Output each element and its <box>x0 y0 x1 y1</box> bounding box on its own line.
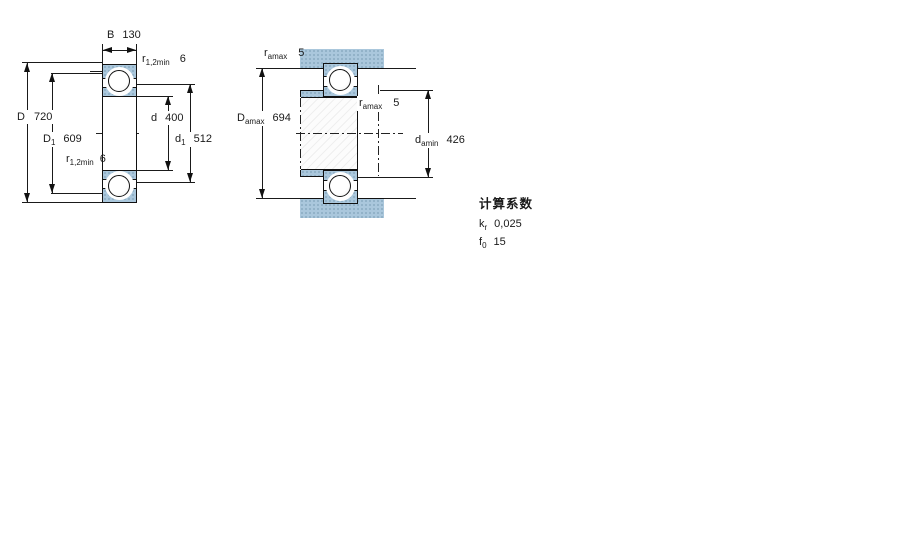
dim-r12-top: r1,2min6 <box>140 52 188 67</box>
fillet-reference-line-lower <box>378 112 379 176</box>
Da-extension-bottom <box>256 198 300 199</box>
factor-kr: kr0,025 <box>479 218 533 230</box>
ball <box>329 175 351 197</box>
d-dimension-line <box>168 96 169 170</box>
mounted-bearing-top <box>323 63 358 97</box>
d-extension-bottom <box>137 170 173 171</box>
D-extension-top <box>22 62 102 63</box>
D1-extension-top <box>51 73 102 74</box>
b-arrow-right <box>127 47 136 53</box>
D-arrow-up <box>24 63 30 72</box>
d-arrow-up <box>165 96 171 105</box>
dim-ra-mid: ramax5 <box>357 96 401 111</box>
Da-dimension-line <box>262 68 263 198</box>
d-arrow-down <box>165 161 171 170</box>
dim-Da: Damax694 <box>235 111 293 126</box>
D-arrow-down <box>24 193 30 202</box>
housing-shoulder-line-top <box>384 68 416 69</box>
dim-d1: d1512 <box>173 132 214 147</box>
shaft-shoulder-top <box>300 90 323 97</box>
mounted-bearing-bottom <box>323 170 358 204</box>
dim-da: damin426 <box>413 133 467 148</box>
bearing-section <box>102 64 137 203</box>
housing-shoulder-line-bottom <box>384 198 416 199</box>
shaft-shoulder-bottom <box>300 170 323 177</box>
calculation-factors-heading: 计算系数 <box>479 193 533 212</box>
D1-arrow-down <box>49 184 55 193</box>
calculation-factors: 计算系数 kr0,025 f015 <box>479 193 533 248</box>
ball-top <box>108 70 130 92</box>
d1-arrow-up <box>187 84 193 93</box>
dim-B: B130 <box>105 28 143 42</box>
Da-arrow-up <box>259 68 265 77</box>
b-arrow-left <box>103 47 112 53</box>
ball <box>329 69 351 91</box>
axis-line-right-view <box>296 133 403 134</box>
dim-D: D720 <box>15 110 54 124</box>
factor-f0: f015 <box>479 236 533 248</box>
D1-arrow-up <box>49 73 55 82</box>
d1-extension-bottom <box>137 182 195 183</box>
da-arrow-down <box>425 168 431 177</box>
dim-ra-top: ramax5 <box>262 46 306 61</box>
dim-D1: D1609 <box>41 132 84 147</box>
b-extension-right <box>136 44 137 64</box>
ball-bottom <box>108 175 130 197</box>
D-extension-bottom <box>22 202 102 203</box>
D1-extension-bottom <box>51 193 102 194</box>
fillet-reference-line-upper <box>378 85 379 96</box>
dim-d: d400 <box>149 111 185 125</box>
da-extension-bottom <box>358 177 433 178</box>
D-dimension-line <box>27 63 28 202</box>
da-arrow-up <box>425 90 431 99</box>
d1-arrow-down <box>187 173 193 182</box>
bearing-drawing: B130 r1,2min6 D720 D1609 r1, <box>0 0 900 560</box>
Da-arrow-down <box>259 189 265 198</box>
dim-r12-mid: r1,2min6 <box>64 152 108 167</box>
